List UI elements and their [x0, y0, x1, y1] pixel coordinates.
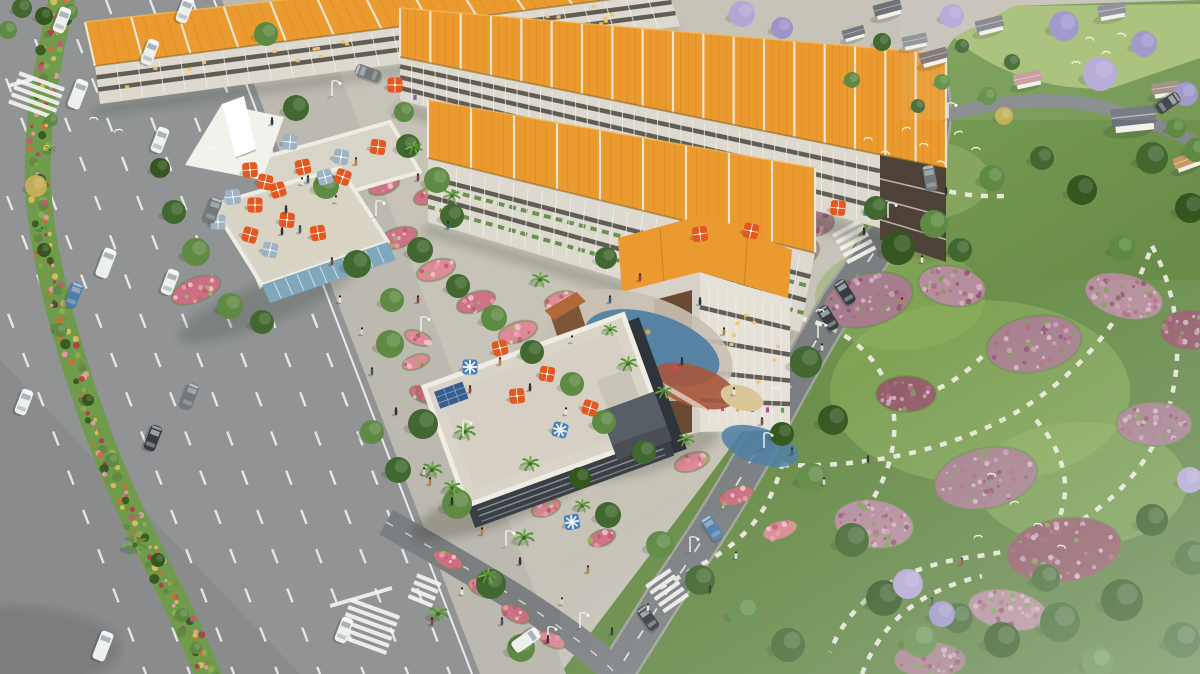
aerial-development-render — [0, 0, 1200, 674]
atmospheric-haze — [560, 280, 1200, 674]
render-canvas — [0, 0, 1200, 674]
